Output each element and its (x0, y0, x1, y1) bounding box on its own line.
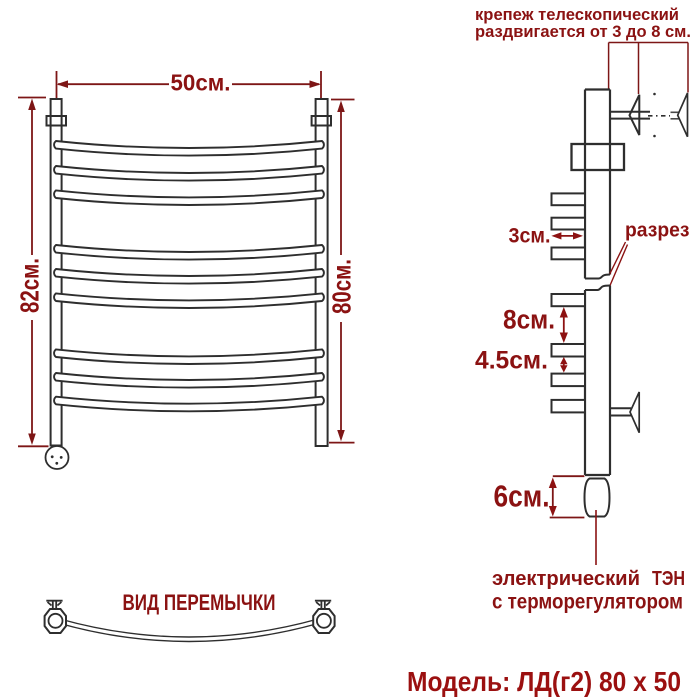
svg-text:Модель: ЛД(г2) 80 х 50: Модель: ЛД(г2) 80 х 50 (407, 666, 681, 697)
svg-text:8см.: 8см. (503, 305, 555, 335)
svg-text:крепеж телескопический: крепеж телескопический (475, 6, 679, 24)
svg-text:50см.: 50см. (171, 70, 231, 96)
svg-text:разрез: разрез (625, 220, 690, 242)
svg-text:4.5см.: 4.5см. (475, 347, 548, 375)
svg-text:раздвигается от 3 до 8 см.: раздвигается от 3 до 8 см. (475, 23, 691, 41)
svg-text:3см.: 3см. (509, 225, 551, 248)
svg-text:80см.: 80см. (327, 259, 357, 314)
svg-text:ВИД ПЕРЕМЫЧКИ: ВИД ПЕРЕМЫЧКИ (123, 590, 276, 615)
svg-text:ТЭН: ТЭН (652, 568, 685, 590)
svg-text:электрический: электрический (492, 568, 640, 590)
svg-text:6см.: 6см. (494, 479, 550, 514)
svg-text:с терморегулятором: с терморегулятором (492, 591, 683, 614)
svg-text:82см.: 82см. (15, 258, 45, 313)
